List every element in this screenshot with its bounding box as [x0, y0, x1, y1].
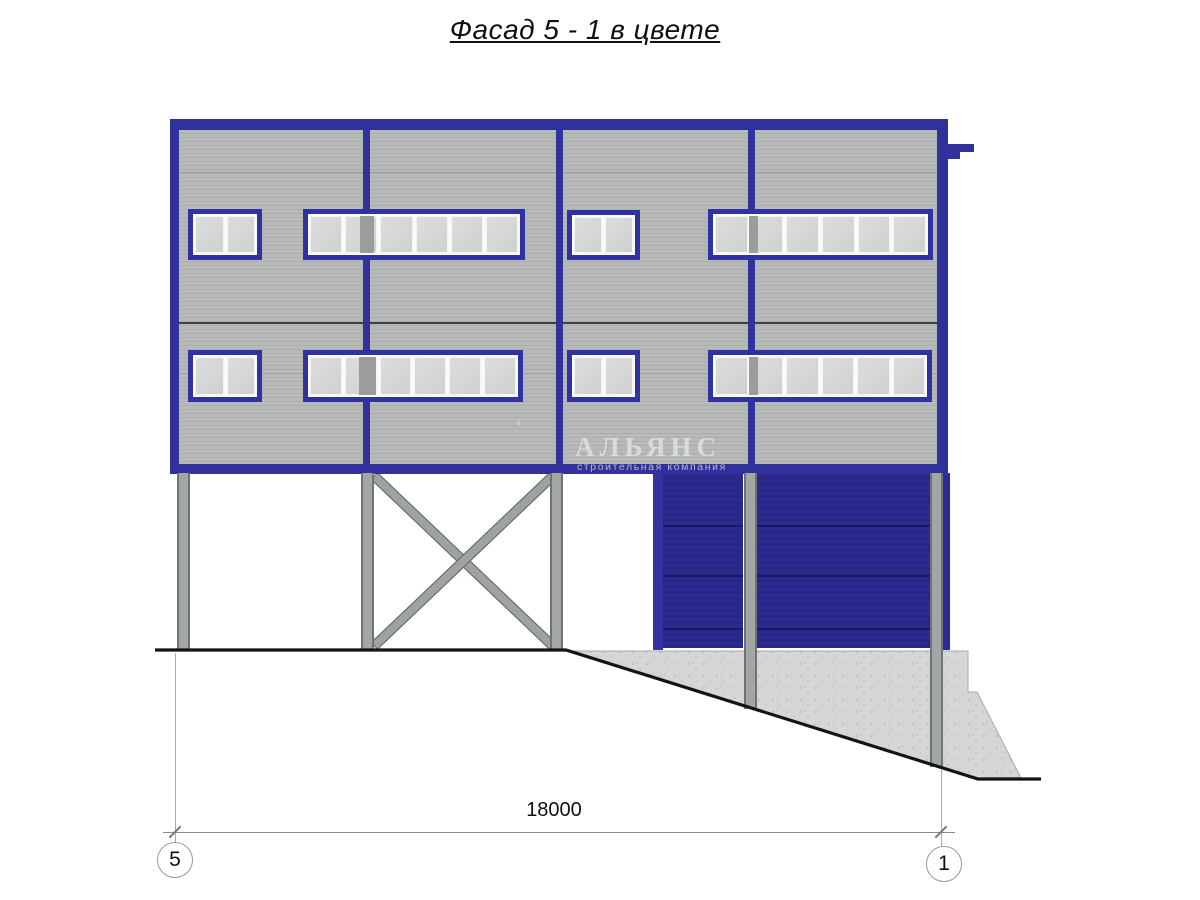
window-pane — [227, 357, 256, 395]
window-bottom-3 — [567, 350, 640, 402]
steel-column — [744, 473, 757, 709]
axis-bubble-1: 1 — [926, 846, 962, 882]
dimension-value: 18000 — [494, 799, 614, 822]
window-pane — [574, 217, 602, 253]
window-pane — [893, 216, 926, 253]
steel-column — [177, 473, 190, 651]
sail-logo-icon — [515, 413, 575, 475]
window-pane — [310, 357, 342, 395]
vent-strip — [359, 357, 376, 395]
window-pane — [786, 216, 819, 253]
vent-strip — [749, 357, 758, 395]
axis-bubble-5: 5 — [157, 842, 193, 878]
gate-panel-joint — [757, 628, 932, 630]
gate-door-left — [663, 473, 743, 648]
facade-mullion — [363, 130, 370, 464]
window-top-1 — [188, 209, 262, 260]
drawing-canvas: Фасад 5 - 1 в цвете — [0, 0, 1200, 900]
gate-panel-joint — [663, 525, 743, 527]
gate-frame-right — [942, 473, 950, 650]
window-bottom-4 — [708, 350, 932, 402]
vent-strip — [360, 216, 374, 253]
window-pane — [786, 357, 819, 395]
gate-door-right — [757, 473, 932, 648]
window-pane — [484, 357, 516, 395]
window-pane — [822, 357, 855, 395]
window-pane — [195, 216, 224, 253]
window-pane — [451, 216, 483, 253]
watermark-company: АЛЬЯНС — [575, 432, 721, 463]
window-pane — [449, 357, 481, 395]
window-pane — [605, 217, 633, 253]
window-pane — [574, 357, 602, 395]
window-top-4 — [708, 209, 933, 260]
window-pane — [380, 357, 412, 395]
window-pane — [858, 216, 891, 253]
vent-strip — [749, 216, 758, 253]
window-pane — [195, 357, 224, 395]
roof-bracket — [948, 144, 974, 152]
window-pane — [380, 216, 412, 253]
page-title: Фасад 5 - 1 в цвете — [370, 14, 800, 46]
window-pane — [822, 216, 855, 253]
steel-column — [550, 473, 563, 651]
window-pane — [715, 216, 748, 253]
window-pane — [310, 216, 342, 253]
gate-panel-joint — [663, 575, 743, 577]
window-pane — [715, 357, 748, 395]
dimension-line — [163, 832, 955, 833]
extension-line-left — [175, 653, 176, 843]
gate-frame-left — [653, 473, 663, 650]
window-pane — [857, 357, 890, 395]
window-pane — [416, 216, 448, 253]
window-top-2 — [303, 209, 525, 260]
window-pane — [414, 357, 446, 395]
gate-panel-joint — [663, 628, 743, 630]
window-bottom-1 — [188, 350, 262, 402]
window-pane — [486, 216, 518, 253]
gate-panel-joint — [757, 525, 932, 527]
facade-mullion — [748, 130, 755, 464]
steel-column — [930, 473, 943, 767]
window-bottom-2 — [303, 350, 523, 402]
window-pane — [893, 357, 926, 395]
gate-panel-joint — [757, 575, 932, 577]
roof-bracket — [948, 152, 960, 159]
steel-column — [361, 473, 374, 651]
window-pane — [227, 216, 256, 253]
window-pane — [605, 357, 633, 395]
window-top-3 — [567, 210, 640, 260]
watermark-tagline: строительная компания — [577, 461, 727, 473]
extension-line-right — [941, 770, 942, 847]
